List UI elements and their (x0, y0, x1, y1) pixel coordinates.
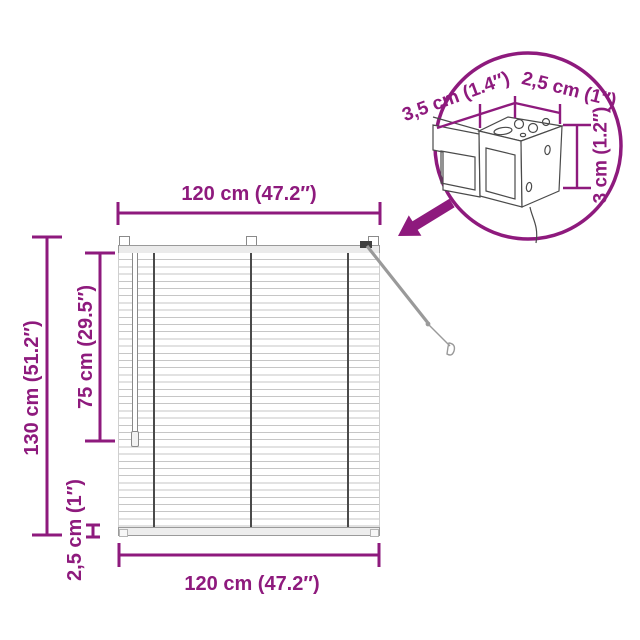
bottom-width-dimension-line (119, 543, 379, 567)
wand-hook (447, 343, 454, 355)
annotation-layer: 120 cm (47.2″) 130 cm (51.2″) 75 cm (29.… (0, 0, 640, 640)
top-width-label: 120 cm (47.2″) (181, 183, 316, 205)
cord-length-label: 75 cm (29.5″) (75, 285, 97, 409)
bottom-width-label: 120 cm (47.2″) (184, 573, 319, 595)
top-width-dimension-line (118, 202, 380, 225)
bottom-rail-label: 2,5 cm (1″) (64, 479, 86, 581)
tilt-wand (367, 246, 454, 355)
callout-arrow-icon (398, 199, 455, 236)
detail-width-label: 2,5 cm (1″) (520, 68, 619, 112)
total-height-label: 130 cm (51.2″) (21, 320, 43, 455)
product-dimension-diagram: 120 cm (47.2″) 130 cm (51.2″) 75 cm (29.… (0, 0, 640, 640)
detail-height-label: 3 cm (1.2″) (591, 107, 612, 204)
detail-headrail-drawing (433, 117, 562, 243)
detail-depth-label: 3,5 cm (1.4″) (399, 68, 512, 126)
detail-height-dimension-line (563, 125, 591, 188)
bottom-rail-dimension-line (86, 525, 100, 537)
